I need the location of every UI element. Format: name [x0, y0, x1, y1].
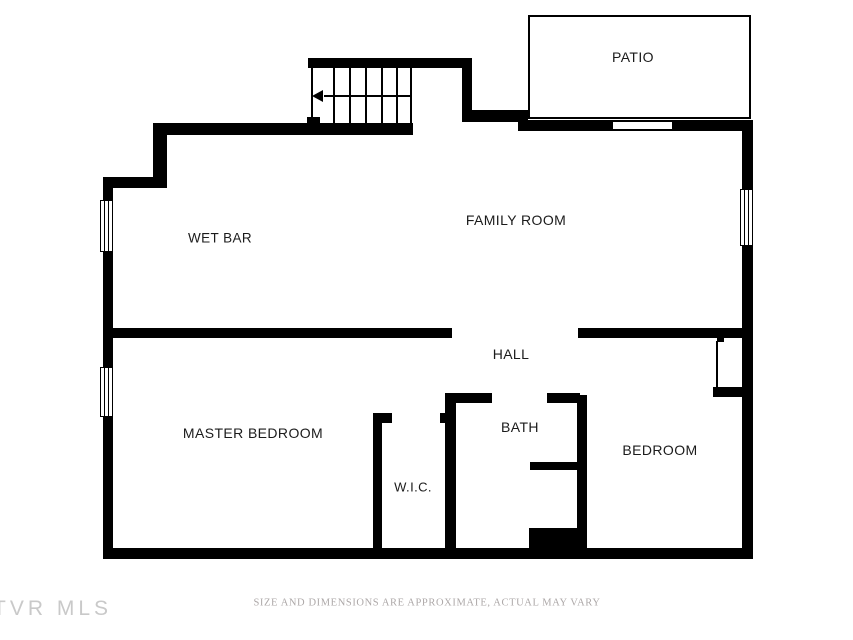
wall	[518, 120, 613, 131]
bath-partition-wall	[530, 462, 580, 470]
floor-plan: PATIO FAMILY ROOM WET BAR MASTER BEDROOM…	[0, 0, 853, 640]
closet-door-line	[716, 341, 718, 388]
wall	[462, 68, 472, 116]
window-glass-line	[744, 190, 749, 245]
window-symbol	[100, 200, 113, 252]
room-label-master-bedroom: MASTER BEDROOM	[183, 425, 323, 441]
window-symbol	[100, 367, 113, 417]
patio-outline	[528, 15, 751, 119]
stair-direction-arrow	[312, 90, 323, 102]
window-symbol	[740, 189, 753, 246]
room-label-hall: HALL	[493, 346, 530, 362]
room-label-bedroom: BEDROOM	[622, 442, 697, 458]
wall	[672, 120, 753, 131]
wall	[373, 413, 392, 423]
stair-direction-line	[324, 95, 411, 97]
wall	[307, 117, 320, 125]
wall	[373, 413, 382, 558]
window-glass-line	[104, 368, 109, 416]
sliding-door-opening	[613, 120, 672, 131]
room-label-wet-bar: WET BAR	[188, 231, 252, 246]
room-label-patio: PATIO	[612, 49, 654, 65]
room-label-family-room: FAMILY ROOM	[466, 212, 566, 228]
closet-wall-tick	[717, 336, 724, 342]
closet-wall-stub	[713, 387, 742, 397]
wall	[308, 58, 472, 68]
wall	[103, 548, 753, 559]
disclaimer-text: SIZE AND DIMENSIONS ARE APPROXIMATE, ACT…	[253, 598, 600, 609]
wall	[153, 123, 413, 135]
wall	[103, 328, 452, 338]
room-label-wic: W.I.C.	[394, 480, 432, 495]
mls-watermark: TVR MLS	[0, 597, 112, 621]
wall	[577, 395, 587, 550]
bath-wall-mass	[529, 528, 585, 558]
wall	[547, 393, 580, 403]
window-glass-line	[104, 201, 109, 251]
room-label-bath: BATH	[501, 419, 539, 435]
wall	[440, 413, 447, 423]
